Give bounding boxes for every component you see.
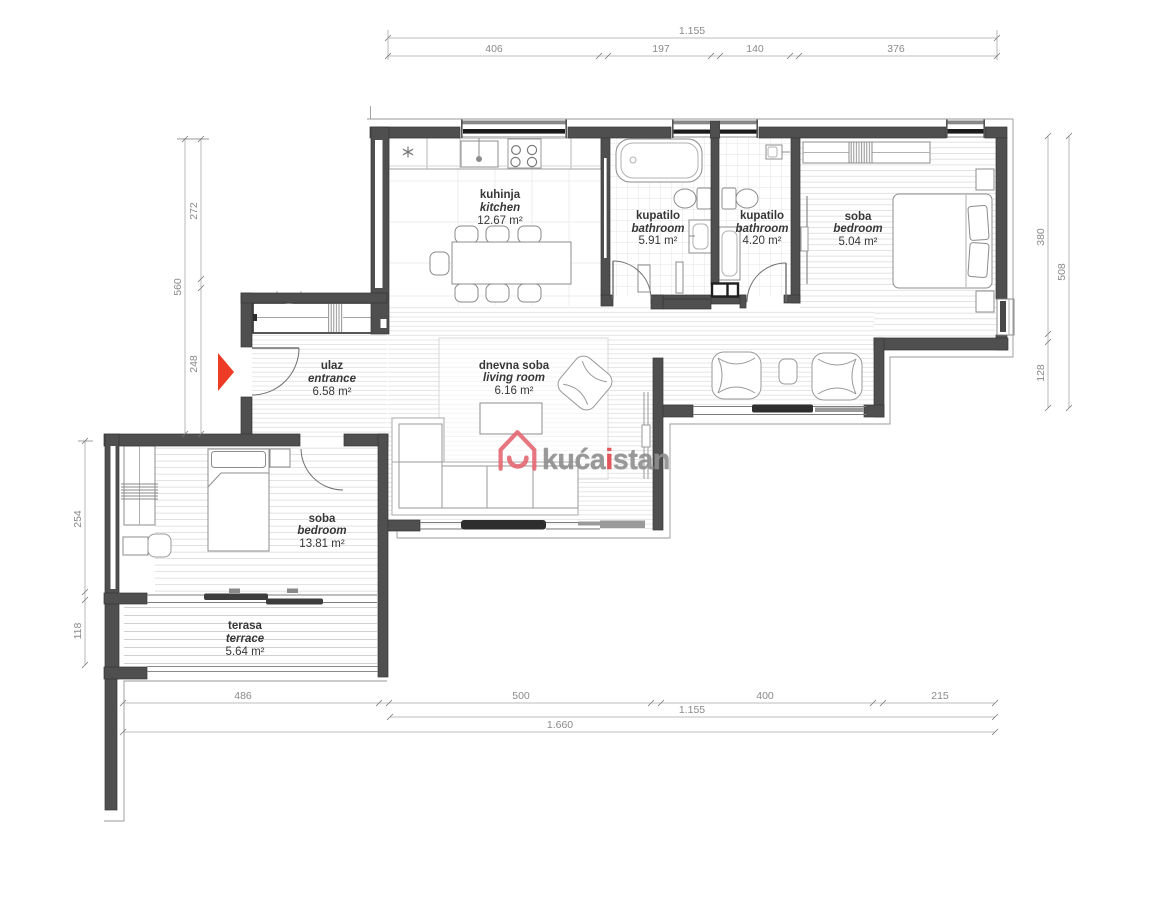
svg-text:1.155: 1.155 bbox=[679, 25, 705, 37]
svg-text:380: 380 bbox=[1035, 228, 1047, 246]
svg-text:entrance: entrance bbox=[308, 373, 357, 385]
svg-text:6.16 m²: 6.16 m² bbox=[495, 385, 534, 397]
svg-text:living room: living room bbox=[483, 372, 545, 384]
svg-text:1.660: 1.660 bbox=[547, 719, 573, 731]
svg-text:bathroom: bathroom bbox=[735, 223, 788, 235]
svg-text:5.04 m²: 5.04 m² bbox=[839, 236, 878, 248]
svg-text:508: 508 bbox=[1056, 263, 1068, 281]
svg-text:406: 406 bbox=[485, 43, 503, 55]
svg-text:254: 254 bbox=[72, 510, 84, 528]
svg-text:5.64 m²: 5.64 m² bbox=[226, 646, 265, 658]
svg-text:soba: soba bbox=[309, 513, 336, 525]
svg-text:486: 486 bbox=[234, 690, 252, 702]
svg-text:215: 215 bbox=[931, 690, 949, 702]
svg-text:kupatilo: kupatilo bbox=[636, 210, 680, 222]
svg-text:kupatilo: kupatilo bbox=[740, 210, 784, 222]
svg-text:118: 118 bbox=[72, 622, 84, 639]
svg-text:bedroom: bedroom bbox=[297, 525, 346, 537]
svg-text:kitchen: kitchen bbox=[480, 202, 520, 214]
svg-text:6.58 m²: 6.58 m² bbox=[313, 386, 352, 398]
svg-text:terrace: terrace bbox=[226, 633, 265, 645]
svg-text:248: 248 bbox=[188, 355, 200, 373]
svg-text:1.155: 1.155 bbox=[679, 704, 705, 716]
svg-text:kućaistan: kućaistan bbox=[542, 444, 670, 476]
svg-text:13.81 m²: 13.81 m² bbox=[299, 538, 345, 550]
svg-text:12.67 m²: 12.67 m² bbox=[477, 215, 523, 227]
svg-text:4.20 m²: 4.20 m² bbox=[743, 235, 782, 247]
svg-text:bathroom: bathroom bbox=[631, 223, 684, 235]
svg-text:bedroom: bedroom bbox=[833, 223, 882, 235]
svg-text:kuhinja: kuhinja bbox=[480, 189, 521, 201]
svg-text:128: 128 bbox=[1035, 364, 1047, 382]
svg-text:dnevna soba: dnevna soba bbox=[479, 360, 550, 372]
svg-text:272: 272 bbox=[188, 202, 200, 220]
svg-text:376: 376 bbox=[887, 43, 905, 55]
svg-text:197: 197 bbox=[652, 43, 670, 55]
svg-text:terasa: terasa bbox=[228, 620, 262, 632]
svg-text:ulaz: ulaz bbox=[321, 360, 344, 372]
svg-text:560: 560 bbox=[172, 278, 184, 296]
svg-text:500: 500 bbox=[512, 690, 530, 702]
svg-text:140: 140 bbox=[746, 43, 764, 55]
svg-text:5.91 m²: 5.91 m² bbox=[639, 235, 678, 247]
svg-text:soba: soba bbox=[845, 211, 872, 223]
svg-text:400: 400 bbox=[756, 690, 774, 702]
